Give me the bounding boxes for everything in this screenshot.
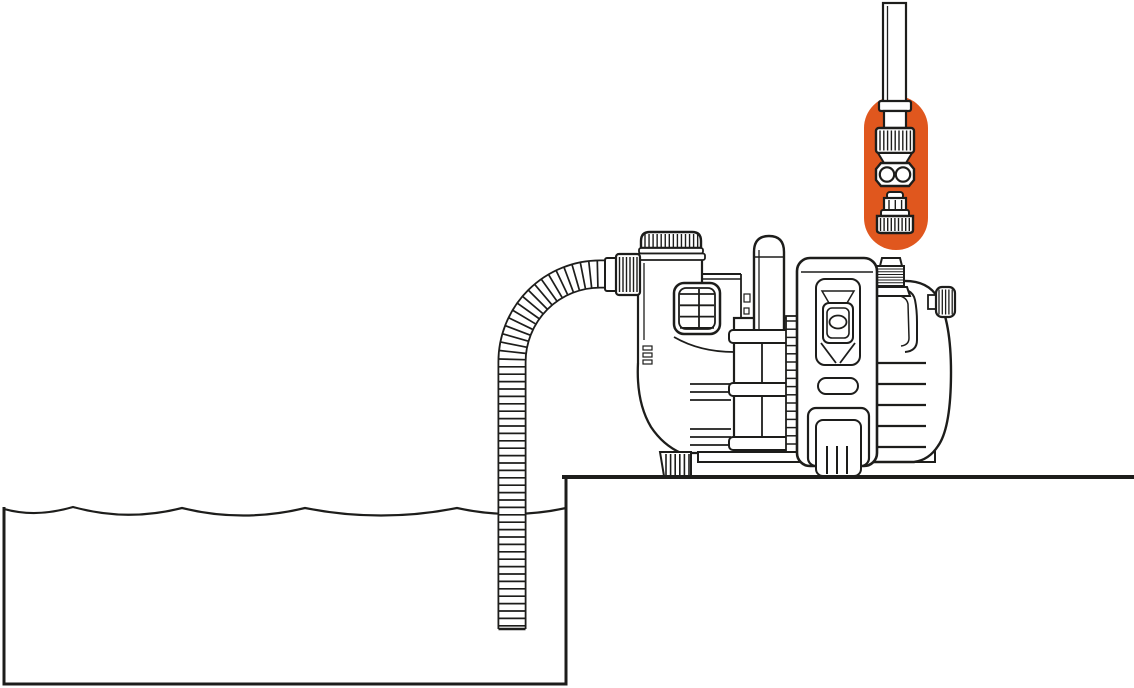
delivery-hose — [883, 3, 906, 102]
connector-kit-highlight — [864, 3, 928, 250]
collar-taper — [878, 153, 912, 163]
volute-rib-1 — [643, 346, 652, 350]
volute-rib-3 — [643, 360, 652, 364]
strap-top — [729, 330, 795, 343]
suction-hose — [499, 261, 608, 629]
filter-cap-dome — [641, 232, 701, 248]
water-reservoir — [4, 475, 566, 684]
garden-pump — [605, 232, 955, 476]
control-panel — [797, 258, 877, 476]
volute-rib-2 — [643, 353, 652, 357]
connector-oring-left — [880, 167, 894, 181]
pump-installation-diagram — [0, 0, 1134, 688]
reservoir-walls — [4, 475, 566, 684]
outlet-collar — [880, 258, 902, 266]
motor-screw-lower — [744, 308, 749, 314]
motor-screw-upper — [744, 294, 750, 302]
strap-middle — [729, 383, 795, 396]
diagram-canvas — [0, 0, 1134, 688]
hose-coupling — [605, 254, 640, 295]
water-surface-line — [4, 507, 566, 516]
filter-cap — [637, 232, 705, 260]
strap-bottom — [729, 437, 795, 450]
hose-end-sleeve — [879, 101, 911, 111]
pump-foot-right — [816, 420, 861, 476]
filter-cap-base — [637, 254, 705, 261]
connector-neck — [884, 111, 906, 128]
connector-oring-right — [896, 167, 910, 181]
outlet-thread-ribs — [877, 269, 903, 286]
